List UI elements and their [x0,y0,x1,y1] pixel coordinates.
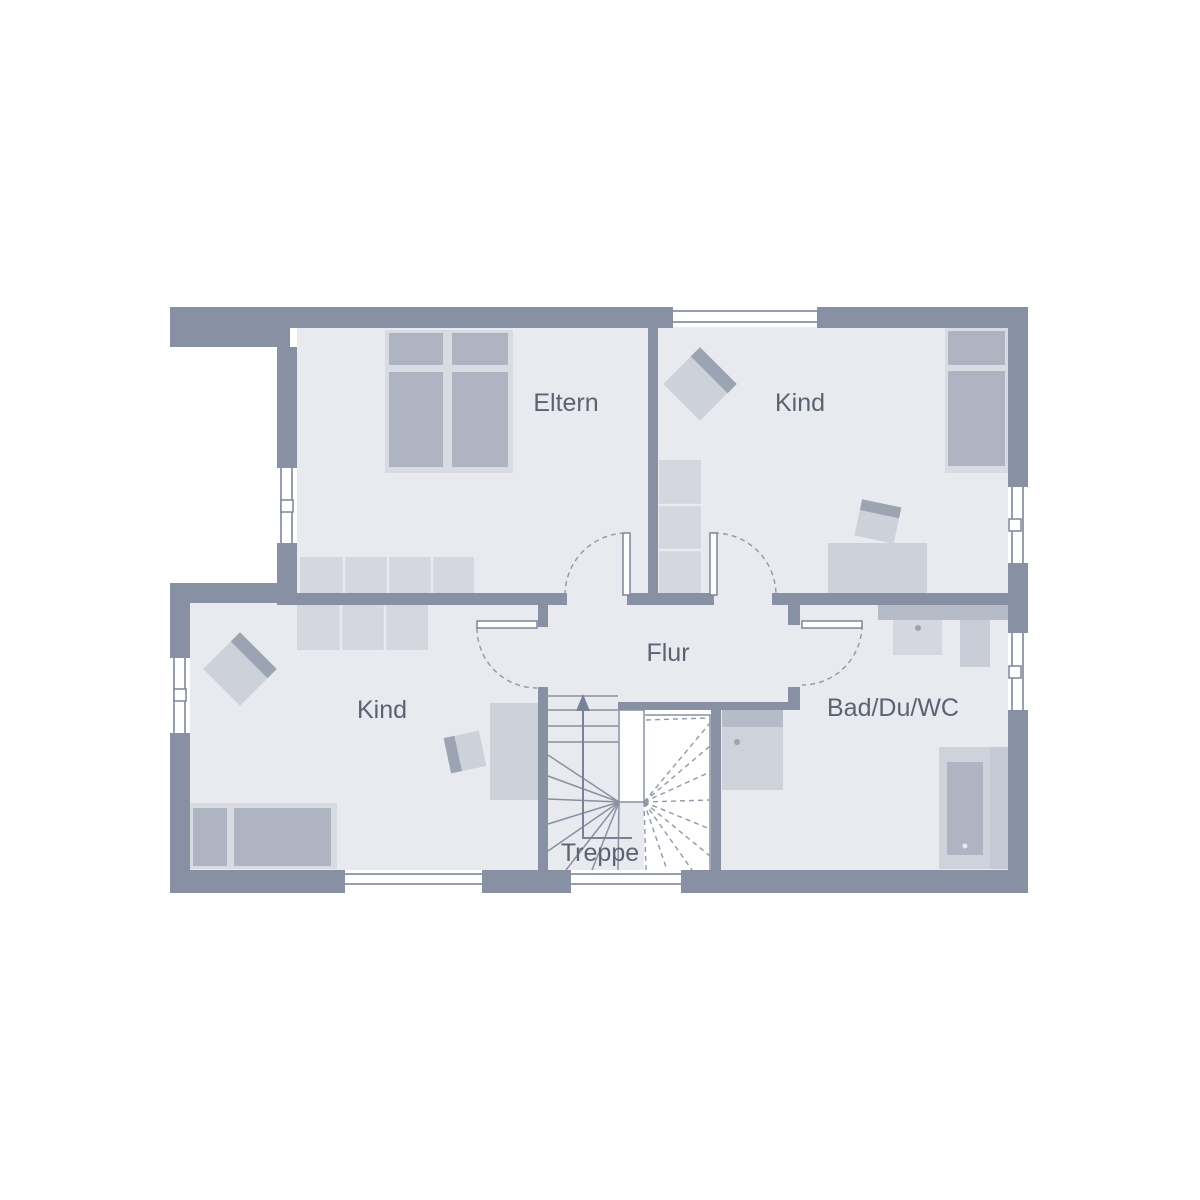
window-handle [1009,666,1021,678]
floor-plan-canvas: Eltern Kind Kind Flur Bad/Du/WC Treppe [0,0,1200,1200]
bathtub-ledge [990,747,1010,869]
wall-right [1008,307,1028,487]
wall-bottom [482,870,571,893]
door-leaf-kind-top [710,533,717,595]
desk [828,543,927,593]
mattress-left [389,372,443,467]
door-opening-bad [788,625,800,687]
wall-left-upper [277,543,297,605]
window-bottom-kind [345,870,482,890]
window-left-upper [277,468,297,543]
pillow-right [452,333,508,365]
wall-treppe-bad [711,710,721,870]
wall-divider-eltern-kind [648,327,658,593]
door-leaf-eltern [623,533,630,595]
wardrobe-row [297,605,428,650]
mattress [948,371,1005,466]
shower-entry [722,710,783,727]
wall-flur-bad [788,687,800,710]
washbasin-counter [878,603,1008,620]
bathtub-inner [947,762,983,855]
wall-right [1008,563,1028,633]
stairwell-void [619,710,644,802]
mattress-right [452,372,508,467]
wall-kind-bottom-flur [538,687,548,870]
wc-toilet [960,620,990,667]
pillow [948,331,1005,365]
desk-chair [444,731,487,774]
label-eltern: Eltern [533,389,598,417]
pillow [193,808,227,866]
wall-top-left-block [170,307,290,347]
wall-left-lower [170,733,190,893]
pillow-left [389,333,443,365]
label-bad: Bad/Du/WC [827,694,959,722]
wall-kind-bottom-flur [538,605,548,627]
bathtub-drain [963,844,968,849]
wall-flur-treppe [618,702,788,710]
wall-left-upper [277,347,297,468]
shelf [659,460,701,593]
wall-right [1008,710,1028,893]
window-handle [1009,519,1021,531]
wall-interior-horizontal [297,593,567,605]
wall-interior-horizontal [627,593,714,605]
wall-bottom [170,870,345,893]
wall-flur-bad [788,605,800,625]
door-leaf-kind-bottom [477,621,537,628]
upper-flight-zone [644,710,711,870]
window-right-upper [1008,487,1028,563]
door-leaf-bad [802,621,862,628]
window-left-lower [170,658,190,733]
label-treppe: Treppe [561,839,639,867]
wall-top [817,307,1028,328]
wall-top [290,307,673,328]
wall-bottom [681,870,1028,893]
washbasin-drain [915,625,921,631]
label-kind-top: Kind [775,389,825,417]
desk [490,703,538,800]
shower-drain [734,739,740,745]
door-opening-kind-top [714,593,772,605]
floor-plan-drawing: Eltern Kind Kind Flur Bad/Du/WC Treppe [0,0,1200,1200]
window-bottom-treppe [571,870,681,890]
window-handle [281,500,293,512]
window-right-bath [1008,633,1028,710]
window-handle [174,689,186,701]
label-kind-bottom: Kind [357,696,407,724]
mattress [234,808,331,866]
label-flur: Flur [646,639,689,667]
window-top [673,307,817,327]
door-opening-eltern [567,593,627,605]
wall-interior-horizontal [772,593,1008,605]
door-opening-kind-bottom [538,627,548,687]
